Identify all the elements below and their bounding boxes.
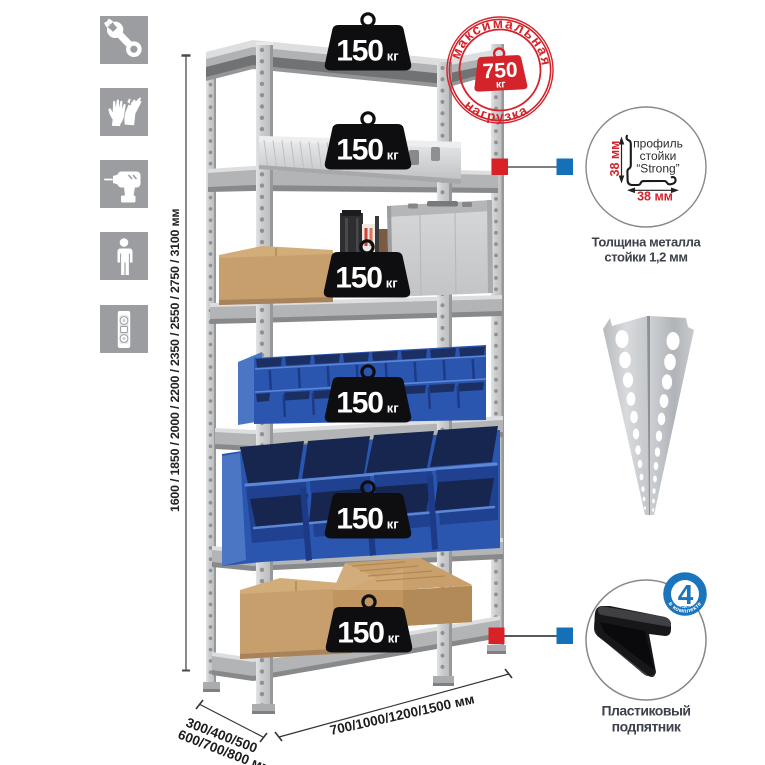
- svg-text:подпятник: подпятник: [612, 719, 682, 735]
- svg-text:“Strong”: “Strong”: [636, 162, 679, 176]
- svg-text:Толщина металла: Толщина металла: [592, 235, 702, 250]
- svg-text:Пластиковый: Пластиковый: [601, 703, 690, 719]
- svg-text:38 мм: 38 мм: [637, 190, 673, 204]
- svg-text:кг: кг: [496, 78, 507, 91]
- svg-text:1600 / 1850 / 2000 / 2200 / 23: 1600 / 1850 / 2000 / 2200 / 2350 / 2550 …: [168, 209, 182, 512]
- svg-text:стойки 1,2 мм: стойки 1,2 мм: [604, 250, 687, 265]
- svg-text:38 мм: 38 мм: [608, 141, 622, 177]
